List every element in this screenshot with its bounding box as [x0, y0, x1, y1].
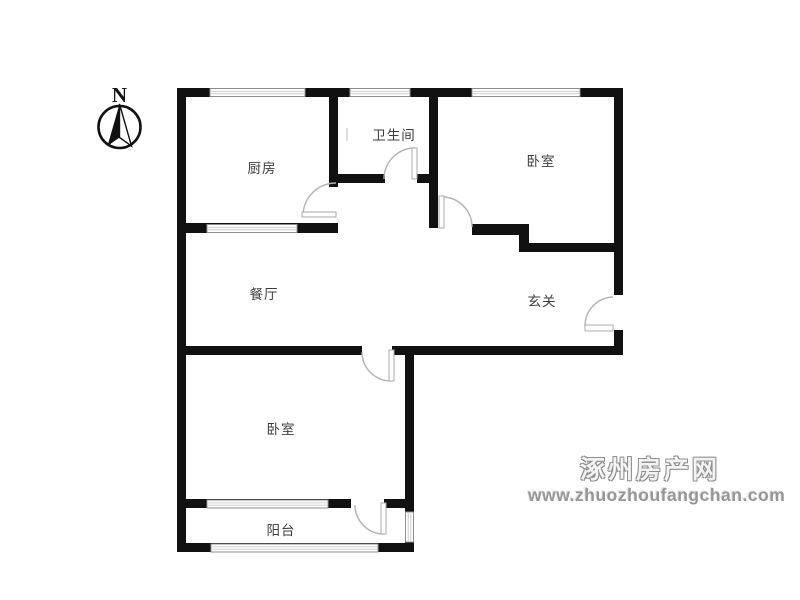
wall-entry-top	[519, 243, 623, 252]
compass-needle-left	[108, 104, 120, 146]
room-label-bedroom-bottom: 卧室	[267, 418, 296, 438]
door-bedroom2	[362, 350, 394, 381]
floorplan-canvas: N	[0, 0, 800, 600]
window-kitchen-bottom	[207, 225, 297, 233]
window-kitchen-top	[210, 89, 305, 97]
wall-hall-bedroom-divider	[429, 88, 438, 228]
window-balcony-right	[406, 512, 414, 542]
wall-kitchen-bath-divider	[329, 88, 338, 187]
wall-bath-bottom	[338, 174, 385, 183]
watermark: 涿州房产网 www.zhuozhoufangchan.com	[528, 456, 772, 505]
compass-icon: N	[99, 83, 141, 148]
door-kitchen	[302, 183, 336, 217]
door-bathroom	[384, 148, 417, 179]
window-bedroom1-top	[472, 89, 580, 97]
watermark-site-name: 涿州房产网	[528, 456, 772, 485]
wall-mid-right	[392, 346, 623, 355]
wall-balcony-divider-right	[384, 499, 414, 508]
window-balcony-divider	[207, 500, 328, 508]
wall-left	[177, 88, 186, 552]
door-bedroom1	[439, 196, 472, 228]
room-label-entry: 玄关	[528, 290, 557, 310]
watermark-site-url: www.zhuozhoufangchan.com	[528, 485, 772, 505]
room-label-bathroom: 卫生间	[372, 124, 416, 144]
window-bathroom-top	[350, 89, 410, 97]
window-balcony-bottom	[211, 544, 378, 552]
compass-north-label: N	[112, 83, 127, 107]
compass-needle-right	[120, 104, 132, 146]
floorplan-page: N 厨房 卫生间 卧室 餐厅 玄关 卧室 阳台 涿州房产网 www.zhuozh…	[0, 0, 800, 600]
room-label-dining: 餐厅	[250, 283, 279, 303]
wall-mid-left	[177, 346, 362, 355]
room-label-kitchen: 厨房	[248, 157, 277, 177]
door-entry	[585, 297, 613, 331]
room-label-bedroom-top: 卧室	[527, 150, 556, 170]
door-balcony	[355, 503, 386, 534]
wall-right-upper	[614, 88, 623, 295]
room-label-balcony: 阳台	[267, 519, 296, 539]
